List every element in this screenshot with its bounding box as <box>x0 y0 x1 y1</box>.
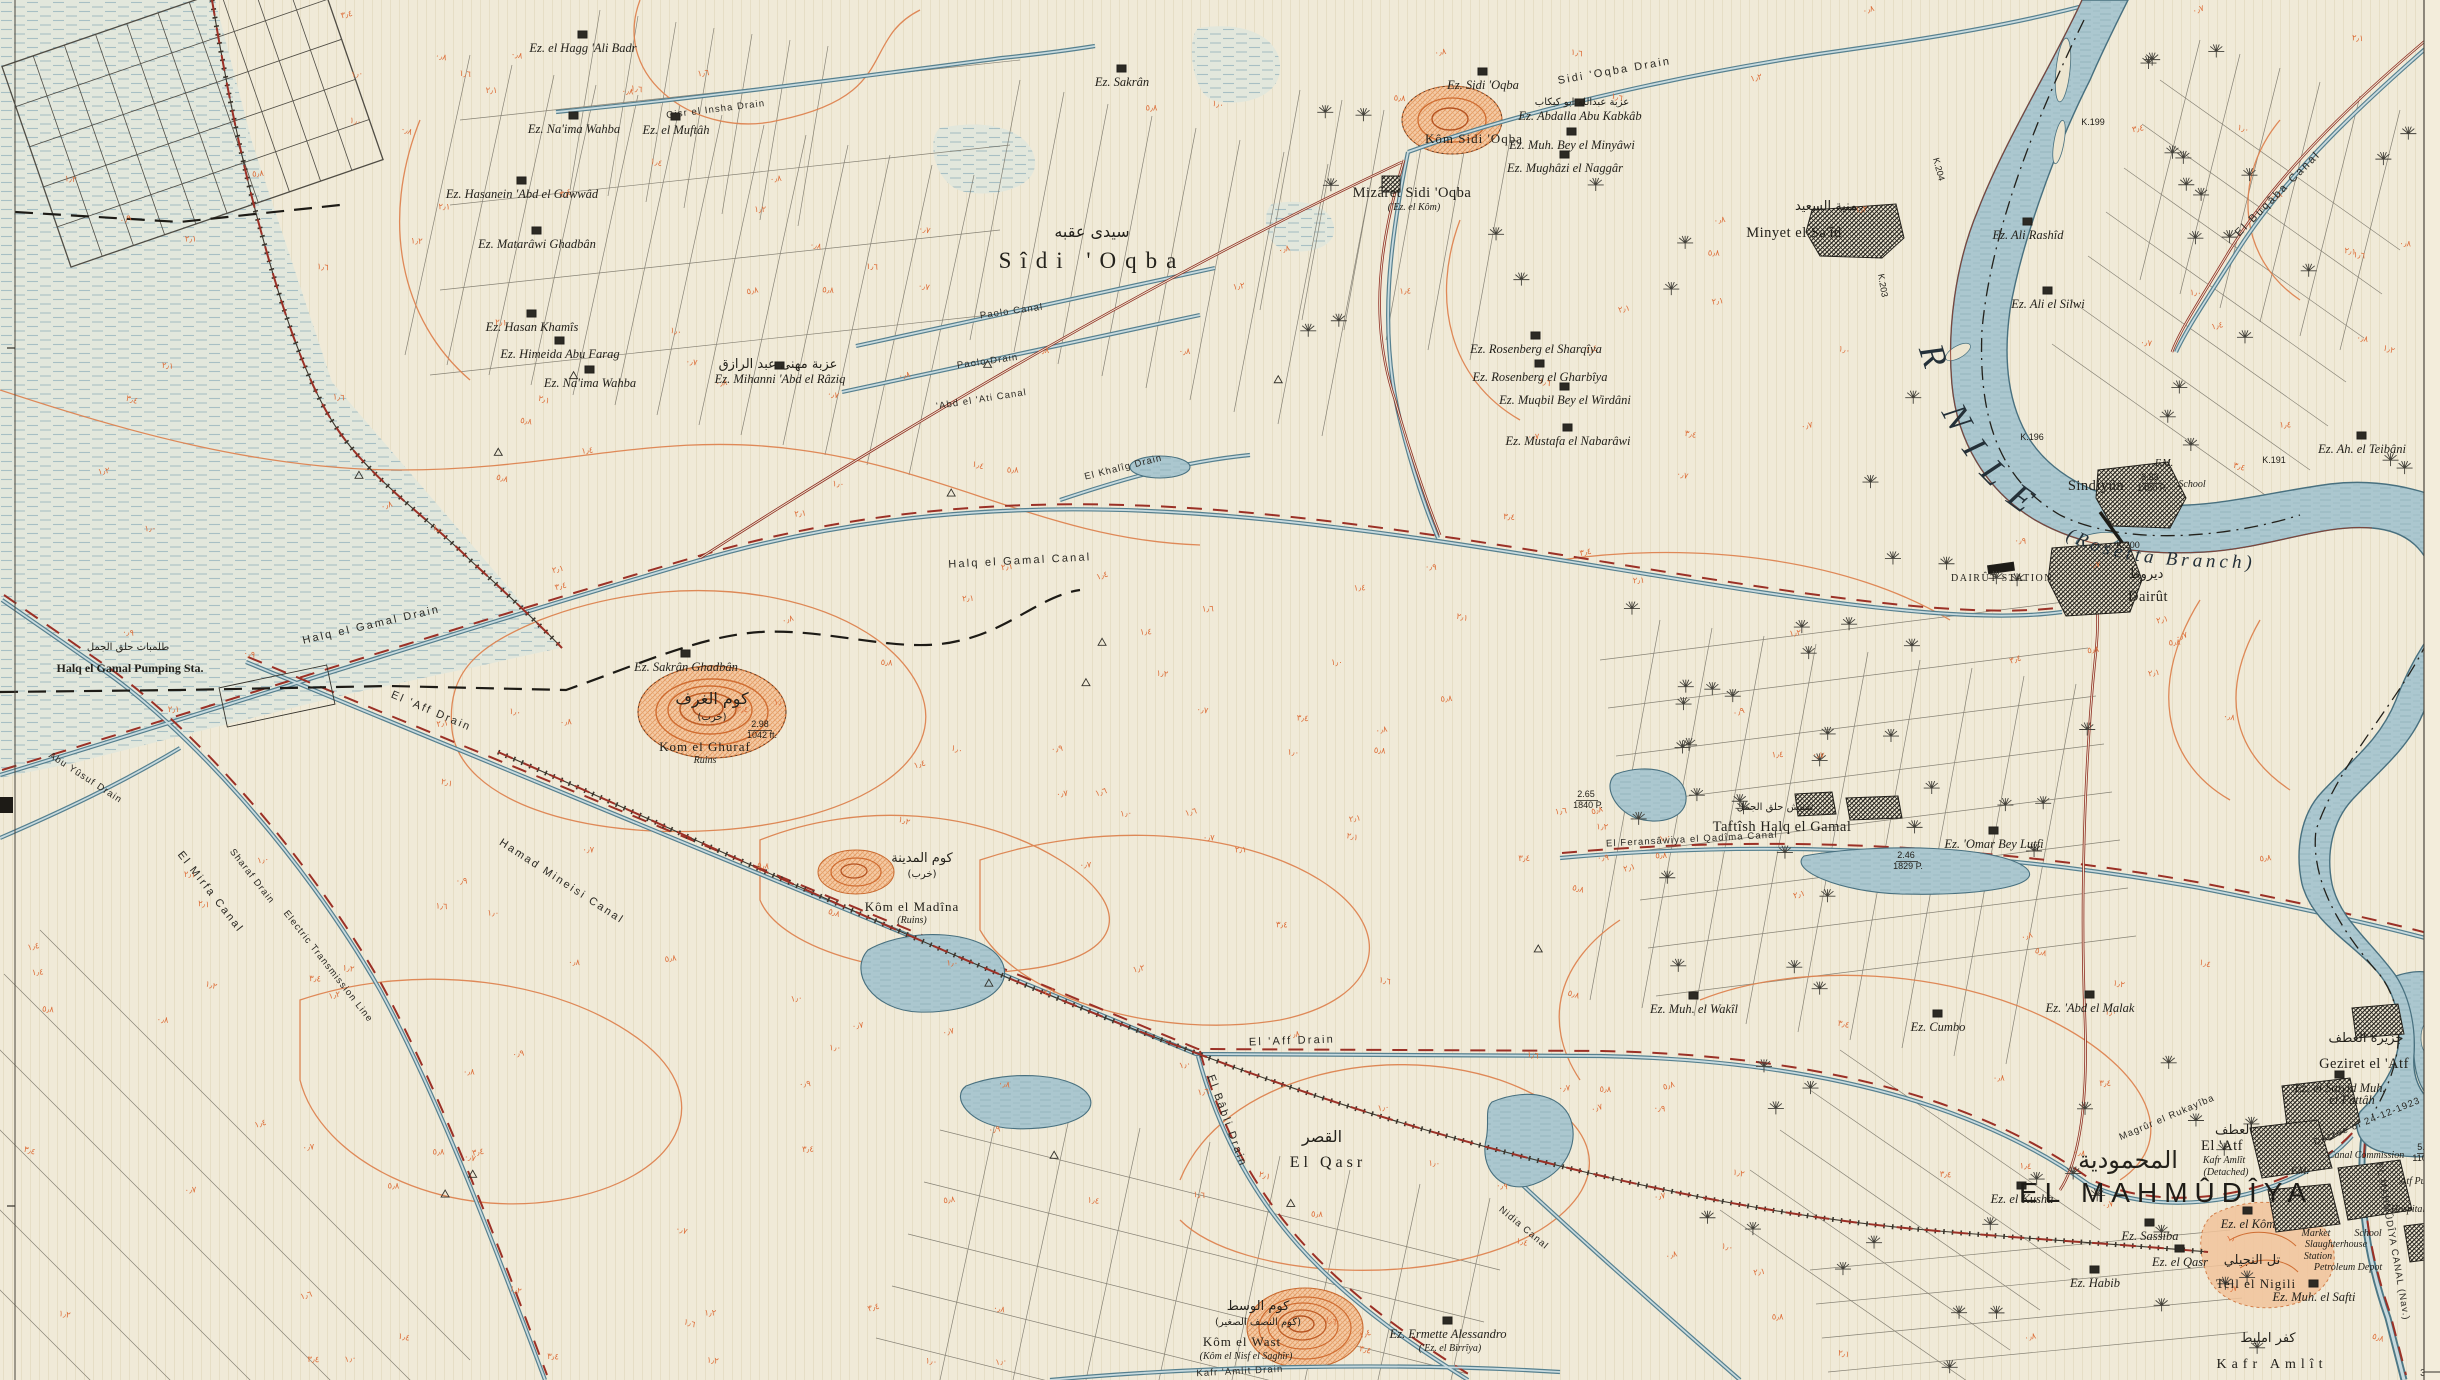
map-label: Ez. Muh. Bey el Minyâwi <box>1508 138 1635 152</box>
spot-height-mark: ٥٫٨ <box>1440 694 1453 705</box>
map-label: Kôm el Madîna <box>865 899 960 914</box>
spot-height-mark: ٢٫١ <box>2147 668 2160 680</box>
hamlet-symbol <box>2335 1071 2344 1078</box>
spot-height-mark: ٥٫٨ <box>519 416 533 428</box>
spot-height-mark: ٠٫٧ <box>1079 860 1092 870</box>
spot-height-mark: ٥٫٨ <box>664 953 678 965</box>
spot-height-mark: ٥٫٨ <box>1311 1210 1324 1221</box>
map-label: تفتيش حلق الجمل <box>1737 802 1814 813</box>
spot-height-mark: ١٫٢ <box>754 205 766 215</box>
spot-height-mark: ١٫٦ <box>316 262 329 273</box>
spot-height-mark: ٢٫١ <box>168 705 180 715</box>
hamlet-symbol <box>1531 332 1540 339</box>
map-label: 2.46 <box>1897 850 1915 860</box>
spot-height-mark: ١٫٠ <box>1428 1159 1440 1170</box>
spot-height-mark: ٠٫٩ <box>1653 1104 1666 1115</box>
spot-height-mark: ١٫٦ <box>1193 1190 1206 1201</box>
map-label: El Qasr <box>1290 1154 1366 1171</box>
map-label: DAIRÛT STATION <box>1951 572 2053 584</box>
spot-height-mark: ٠٫٧ <box>2088 560 2101 571</box>
hamlet-symbol <box>2085 991 2094 998</box>
spot-height-mark: ١٫٠ <box>144 524 156 534</box>
hamlet-symbol <box>1560 151 1569 158</box>
spot-height-mark: ٣٫٤ <box>1503 512 1516 523</box>
map-label: K.196 <box>2020 432 2044 442</box>
spot-height-mark: ٣٫٤ <box>307 1355 319 1365</box>
spot-height-mark: ٢٫١ <box>185 235 197 245</box>
map-label: Ez. Na'ima Wahba <box>527 122 620 136</box>
spot-height-mark: ٠٫٩ <box>988 1124 1001 1135</box>
hamlet-symbol <box>1563 424 1572 431</box>
spot-height-mark: ٣٫٤ <box>1276 920 1288 930</box>
spot-height-mark: ٠٫٩ <box>1597 853 1610 864</box>
map-label: Ez. Sakrân <box>1094 75 1149 89</box>
map-label: Minyet el Sa'îd <box>1746 225 1842 241</box>
spot-height-mark: ٠٫٨ <box>559 717 572 728</box>
spot-height-mark: ٥٫٨ <box>757 861 770 872</box>
map-label: Ez. Hasan Khamîs <box>485 320 579 334</box>
spot-height-mark: ١٫٠ <box>1287 748 1300 759</box>
spot-height-mark: ١٫٢ <box>1789 628 1802 639</box>
spot-height-mark: ٠٫٧ <box>184 1185 197 1196</box>
spot-height-mark: ١٫٠ <box>349 116 362 128</box>
map-label: Kôm el Wast <box>1203 1334 1281 1349</box>
spot-height-mark: ٥٫٨ <box>1772 1312 1784 1322</box>
spot-height-mark: ٢٫١ <box>1753 1267 1766 1279</box>
map-label: Ez. Rosenberg el Gharbîya <box>1472 370 1608 384</box>
spot-height-mark: ١٫٢ <box>97 466 111 478</box>
spot-height-mark: ٥٫٨ <box>1393 93 1406 104</box>
spot-height-mark: ١٫٦ <box>630 84 644 96</box>
map-label: Ez. el Muftâh <box>641 123 709 137</box>
map-label: Mizâret Sidi 'Oqba <box>1353 185 1472 201</box>
spot-height-mark: ٠٫٧ <box>1812 750 1825 761</box>
spot-height-mark: ١٫٢ <box>1232 281 1246 293</box>
spot-height-mark: ٠٫٨ <box>2399 239 2412 250</box>
spot-height-mark: ٥٫٨ <box>1708 248 1720 258</box>
map-label: كوم الوسط <box>1227 1299 1290 1314</box>
spot-height-mark: ٠٫٨ <box>568 958 581 968</box>
map-label: Ez. Himeida Abu Farag <box>499 347 619 361</box>
spot-height-mark: ٣٫٤ <box>2131 123 2144 135</box>
spot-height-mark: ٠٫٧ <box>685 357 699 369</box>
spot-height-mark: ٠٫٩ <box>121 627 134 638</box>
map-label: Ez. Mughâzi el Naggâr <box>1506 161 1623 175</box>
map-label: Ez. el Kusha <box>1990 1192 2054 1206</box>
spot-height-mark: ٥٫٨ <box>252 169 265 180</box>
map-label: (Ruins) <box>897 915 927 926</box>
spot-height-mark: ١٫٠ <box>773 697 786 708</box>
hamlet-symbol <box>517 177 526 184</box>
spot-height-mark: ٠٫٧ <box>2140 338 2153 349</box>
spot-height-mark: ١٫٦ <box>1202 604 1214 614</box>
spot-height-mark: ٣٫٤ <box>2099 1079 2111 1089</box>
hamlet-symbol <box>1443 1317 1452 1324</box>
map-label: عزبة مهنى عبد الرازق <box>719 357 838 372</box>
map-label: K.199 <box>2081 117 2105 127</box>
map-label: العطف <box>2215 1123 2253 1138</box>
spot-height-mark: ١٫٦ <box>435 901 448 912</box>
hamlet-symbol <box>1933 1010 1942 1017</box>
spot-height-mark: ٢٫١ <box>962 594 974 605</box>
map-label: 1840 P. <box>1573 800 1603 810</box>
spot-height-mark: ٥٫٨ <box>387 1181 399 1191</box>
spot-height-mark: ٠٫٨ <box>1713 215 1727 227</box>
map-label: ('Ez. el Birrîya) <box>1419 1343 1482 1354</box>
hamlet-symbol <box>1478 68 1487 75</box>
spot-height-mark: ٠٫٩ <box>1425 562 1438 573</box>
map-label: 1480 P. <box>2137 483 2167 493</box>
spot-height-mark: ٠٫٧ <box>917 281 931 293</box>
map-label: Ez. el Kôm <box>2220 1217 2276 1231</box>
map-label: Canal Commission <box>2328 1150 2404 1161</box>
hamlet-symbol <box>2090 1266 2099 1273</box>
map-label: Ez. Rosenberg el Sharqîya <box>1469 342 1602 356</box>
spot-height-mark: ٥٫٨ <box>2168 638 2181 649</box>
spot-height-mark: ٠٫٨ <box>1434 47 1448 59</box>
map-label: Hospital <box>2390 1204 2426 1215</box>
map-label: Geziret el 'Atf <box>2319 1056 2409 1072</box>
map-label: el Fattâh <box>2329 1093 2374 1107</box>
map-label: Ez. Muqbil Bey el Wirdâni <box>1498 393 1631 407</box>
spot-height-mark: ١٫٤ <box>1140 627 1152 638</box>
hamlet-symbol <box>569 112 578 119</box>
hamlet-symbol <box>532 227 541 234</box>
spot-height-mark: ١٫٠ <box>2189 288 2202 299</box>
spot-height-mark: ٠٫٨ <box>1179 347 1191 357</box>
map-label: Station <box>2304 1251 2332 1262</box>
map-label: Ez. 'Abd el Malak <box>2045 1001 2135 1015</box>
spot-height-mark: ٥٫٨ <box>880 658 893 669</box>
spot-height-mark: ١٫٤ <box>1399 287 1411 297</box>
spot-height-mark: ١٫٤ <box>2019 1161 2032 1172</box>
map-label: المحمودية <box>2078 1146 2178 1174</box>
hamlet-symbol <box>1989 827 1998 834</box>
hamlet-symbol <box>1567 128 1576 135</box>
spot-height-mark: ١٫٤ <box>1087 1195 1100 1206</box>
spot-height-mark: ١٫٠ <box>351 69 364 81</box>
spot-height-mark: ٣٫٤ <box>309 974 321 985</box>
spot-height-mark: ١٫٦ <box>697 68 710 79</box>
spot-height-mark: ٠٫٩ <box>1050 744 1063 755</box>
spot-height-mark: ١٫٦ <box>1197 1087 1210 1098</box>
map-label: كوم الغرف <box>675 689 749 709</box>
spot-height-mark: ٢٫١ <box>1711 296 1724 308</box>
map-label: F.M. <box>2290 1166 2309 1177</box>
spot-height-mark: ١٫٠ <box>832 479 845 490</box>
spot-height-mark: ٢٫١ <box>161 361 174 372</box>
map-label: Sîdi 'Oqba <box>999 248 1186 273</box>
spot-height-mark: ١٫٦ <box>866 262 879 273</box>
spot-height-mark: ١٫٠ <box>257 855 270 867</box>
map-label: Slaughterhouse <box>2305 1239 2368 1250</box>
map-label: 1042 ft. <box>747 730 777 740</box>
spot-height-mark: ١٫٢ <box>1596 822 1609 832</box>
spot-height-mark: ١٫٠ <box>946 959 958 969</box>
spot-height-mark: ٢٫١ <box>1235 845 1247 855</box>
spot-height-mark: ٠٫٨ <box>1037 346 1049 356</box>
spot-height-mark: ٠٫٧ <box>1203 833 1216 843</box>
spot-height-mark: ٠٫٩ <box>512 1048 526 1060</box>
spot-height-mark: ٣٫٤ <box>802 1145 814 1155</box>
map-label: Tell el Nigili <box>2216 1276 2296 1291</box>
map-label: K.191 <box>2262 455 2286 465</box>
spot-height-mark: ٠٫٨ <box>463 1067 475 1077</box>
spot-height-mark: ٢٫١ <box>1633 576 1645 586</box>
spot-height-mark: ٠٫٧ <box>302 1142 315 1153</box>
spot-height-mark: ١٫٦ <box>1570 48 1584 60</box>
spot-height-mark: ٠٫٧ <box>582 845 595 855</box>
spot-height-mark: ٠٫٧ <box>1196 705 1210 717</box>
spot-height-mark: ٢٫١ <box>197 899 210 910</box>
spot-height-mark: ٥٫٨ <box>2259 853 2272 864</box>
spot-height-mark: ١٫٠ <box>487 908 499 918</box>
map-label: School <box>2354 1228 2381 1239</box>
map-label: Ez. Muh. el Safti <box>2272 1290 2357 1304</box>
spot-height-mark: ٥٫٨ <box>822 285 835 296</box>
map-label: Ez. Ali Rashîd <box>1992 228 2065 242</box>
map-label: Ez. Habib <box>2069 1276 2120 1290</box>
map-label: Petroleum Depot <box>2313 1262 2382 1273</box>
map-label: Ez. Ermette Alessandro <box>1388 1327 1506 1341</box>
spot-height-mark: ١٫٦ <box>332 392 345 403</box>
map-label: Ez. el Hagg 'Ali Badr <box>528 41 636 55</box>
spot-height-mark: ١٫٠ <box>925 1356 938 1368</box>
map-label: Kafr Amlît <box>2216 1357 2327 1372</box>
spot-height-mark: ٥٫٨ <box>1599 1085 1612 1095</box>
spot-height-mark: ٥٫٨ <box>943 1195 956 1206</box>
spot-height-mark: ٠٫٩ <box>456 876 468 886</box>
map-label: عزبة عبدالله ابو كبكاب <box>1535 97 1629 108</box>
spot-height-mark: ٠٫٨ <box>2222 712 2236 724</box>
map-label: ('Ez. el Kôm) <box>1388 202 1441 213</box>
spot-height-mark: ٠٫٨ <box>769 174 782 185</box>
map-label: Ez. Mihanni 'Abd el Râziq <box>714 372 846 386</box>
map-label: Ez. Mustafa el Nabarâwi <box>1504 434 1631 448</box>
hamlet-symbol <box>527 310 536 317</box>
map-label: (Detached) <box>2204 1167 2250 1178</box>
map-label: Ez. Na'ima Wahba <box>543 376 636 390</box>
map-label: Ez. Hasanein 'Abd el Gawwâd <box>445 187 599 201</box>
spot-height-mark: ١٫٤ <box>2279 420 2291 430</box>
map-label: Ez. Ali el Silwi <box>2010 297 2085 311</box>
map-label: (Kôm el Nisf el Saghîr) <box>1200 1351 1293 1362</box>
map-label: Ez. Cumbo <box>1910 1020 1966 1034</box>
spot-height-mark: ٢٫١ <box>486 86 498 96</box>
map-label: Kom el Ghuraf <box>659 739 751 754</box>
hamlet-symbol <box>1535 360 1544 367</box>
spot-height-mark: ٥٫٨ <box>2087 645 2101 657</box>
map-label: سيدى عقبه <box>1054 222 1129 241</box>
spot-height-mark: ٥٫٨ <box>746 285 760 297</box>
spot-height-mark: ١٫٠ <box>1331 658 1343 668</box>
spot-height-mark: ١٫٠ <box>829 1043 841 1053</box>
spot-height-mark: ٠٫٩ <box>1495 1181 1508 1192</box>
tell-kom-el-madina <box>818 850 894 894</box>
spot-height-mark: ٢٫١ <box>2351 33 2364 44</box>
spot-height-mark: ١٫٢ <box>1156 669 1169 680</box>
spot-height-mark: ٠٫٩ <box>2014 536 2027 547</box>
map-label: EL MAHMÛDÎYA <box>2019 1177 2313 1208</box>
map-label: Ez. Muh. el Wakîl <box>1649 1002 1739 1016</box>
map-label: (خرب) <box>908 869 937 880</box>
map-label: 3.83 <box>2141 472 2159 482</box>
hamlet-symbol <box>2145 1219 2154 1226</box>
map-label: كفر امليط <box>2240 1331 2296 1346</box>
spot-height-mark: ٢٫١ <box>794 509 807 520</box>
spot-height-mark: ١٫٢ <box>58 1309 72 1321</box>
map-label: Market <box>2301 1228 2331 1239</box>
spot-height-mark: ٢٫١ <box>438 202 450 212</box>
spot-height-mark: ١٫٠ <box>344 1353 357 1365</box>
map-label: Ez. Sakrân Ghadbân <box>633 660 738 674</box>
hamlet-symbol <box>1117 65 1126 72</box>
map-label: Ez. 'Omar Bey Lutfi <box>1943 837 2044 851</box>
hamlet-symbol <box>555 337 564 344</box>
spot-height-mark: ١٫٠ <box>508 707 521 719</box>
spot-height-mark: ٠٫٧ <box>1056 789 1069 800</box>
spot-height-mark: ١٫٠ <box>790 993 803 1004</box>
map-label: F.M. <box>2154 458 2173 469</box>
map-label: Ruins <box>693 755 717 766</box>
map-label: Ez. Abdalla Abu Kabkâb <box>1517 109 1641 123</box>
map-label: 2.98 <box>751 719 769 729</box>
spot-height-mark: ١٫٠ <box>1120 808 1133 819</box>
village-taftish-2 <box>1846 796 1902 820</box>
map-label: El 'Atf <box>2201 1138 2243 1154</box>
hamlet-symbol <box>2043 287 2052 294</box>
spot-height-mark: ٠٫٨ <box>156 1015 169 1026</box>
map-label: ديروط <box>2129 567 2164 582</box>
spot-height-mark: ١٫٦ <box>1526 1050 1540 1062</box>
pond <box>960 1076 1090 1129</box>
spot-height-mark: ١٫٢ <box>704 1309 716 1319</box>
spot-height-mark: ٣٫٤ <box>1684 429 1697 441</box>
map-label: Ez. Sassiba <box>2121 1229 2179 1243</box>
map-label: Halq el Gamal Pumping Sta. <box>56 661 203 675</box>
spot-height-mark: ٥٫٨ <box>42 1004 55 1015</box>
map-label: (كوم النصف الصغير) <box>1215 1317 1301 1328</box>
spot-height-mark: ٠٫٨ <box>997 1079 1011 1091</box>
spot-height-mark: ١٫٠ <box>995 1356 1008 1368</box>
spot-height-mark: ٥٫٨ <box>1655 851 1668 862</box>
spot-height-mark: ٠٫٧ <box>1653 1191 1667 1203</box>
map-label: 2.65 <box>1577 789 1595 799</box>
spot-height-mark: ٥٫٨ <box>1007 465 1019 475</box>
spot-height-mark: ١٫٢ <box>342 963 356 975</box>
spot-height-mark: ٣٫٤ <box>1518 854 1530 864</box>
top-map-el-mahmudiya: ٢٫١٢٫١٥٫٨٠٫٧١٫٠٠٫٨٠٫٨٥٫٨٠٫٨٢٫١٥٫٨١٫٢٢٫١١… <box>0 0 2440 1380</box>
spot-height-mark: ١٫٦ <box>1554 806 1567 817</box>
spot-height-mark: ٥٫٨ <box>433 1148 445 1158</box>
map-label: School <box>2178 479 2205 490</box>
map-label: Ez. el Qasr <box>2151 1255 2208 1269</box>
spot-height-mark: ١٫٢ <box>411 236 424 246</box>
hamlet-symbol <box>1560 383 1569 390</box>
hamlet-symbol <box>1689 992 1698 999</box>
map-label: Kafr Amlît <box>2202 1155 2246 1166</box>
spot-height-mark: ١٫٤ <box>581 446 594 457</box>
spot-height-mark: ١٫٢ <box>706 1355 719 1366</box>
hamlet-symbol <box>681 650 690 657</box>
hamlet-symbol <box>2023 218 2032 225</box>
spot-height-mark: ٠٫٧ <box>851 1020 865 1032</box>
edge-box <box>0 797 13 813</box>
spot-height-mark: ٠٫٨ <box>1993 1074 2005 1084</box>
hamlet-symbol <box>578 31 587 38</box>
spot-height-mark: ٥٫٨ <box>1373 746 1386 757</box>
map-label: Sindiyûn <box>2068 478 2125 494</box>
spot-height-mark: ٣٫٤ <box>471 1147 484 1159</box>
map-label: منية السعيد <box>1795 199 1857 214</box>
map-label: (خرب) <box>698 712 727 723</box>
map-label: Ez. Matarâwi Ghadbân <box>477 237 596 251</box>
map-sheet: ٢٫١٢٫١٥٫٨٠٫٧١٫٠٠٫٨٠٫٨٥٫٨٠٫٨٢٫١٥٫٨١٫٢٢٫١١… <box>0 0 2440 1380</box>
spot-height-mark: ١٫٤ <box>1354 583 1366 594</box>
hamlet-symbol <box>585 366 594 373</box>
spot-height-mark: ١٫٤ <box>1771 750 1783 760</box>
hamlet-symbol <box>2357 432 2366 439</box>
map-label: Ez. Sidi 'Oqba <box>1446 78 1519 92</box>
spot-height-mark: ٠٫٩ <box>799 1079 812 1090</box>
hamlet-symbol <box>2175 1245 2184 1252</box>
spot-height-mark: ٣٫٤ <box>1939 1170 1952 1181</box>
map-label: جزيرة العطف <box>2329 1031 2404 1046</box>
map-label: طلمبات حلق الجمل <box>87 642 169 653</box>
map-label: 1829 P. <box>1893 861 1923 871</box>
spot-height-mark: ٥٫٨ <box>1146 103 1158 113</box>
map-label: تل النجيلي <box>2224 1253 2281 1268</box>
spot-height-mark: ٢٫١ <box>1348 813 1361 825</box>
hamlet-symbol <box>2309 1280 2318 1287</box>
spot-height-mark: ١٫٦ <box>459 69 472 80</box>
spot-height-mark: ١٫٤ <box>32 967 45 978</box>
spot-height-mark: ١٫٦ <box>2353 250 2366 261</box>
spot-height-mark: ١٫٠ <box>1377 1103 1390 1114</box>
map-label: كوم المدينة <box>891 851 953 866</box>
map-label: Ez. Ah. el Teibâni <box>2317 442 2406 456</box>
spot-height-mark: ٠٫٧ <box>1558 1083 1571 1093</box>
map-label: القصر <box>1301 1127 1342 1147</box>
map-label: Dairût <box>2128 589 2168 605</box>
spot-height-mark: ٣٫٤ <box>547 1352 559 1363</box>
spot-height-mark: ٣٫٤ <box>1296 713 1309 724</box>
hamlet-symbol <box>2243 1207 2252 1214</box>
spot-height-mark: ١٫٢ <box>64 174 77 185</box>
